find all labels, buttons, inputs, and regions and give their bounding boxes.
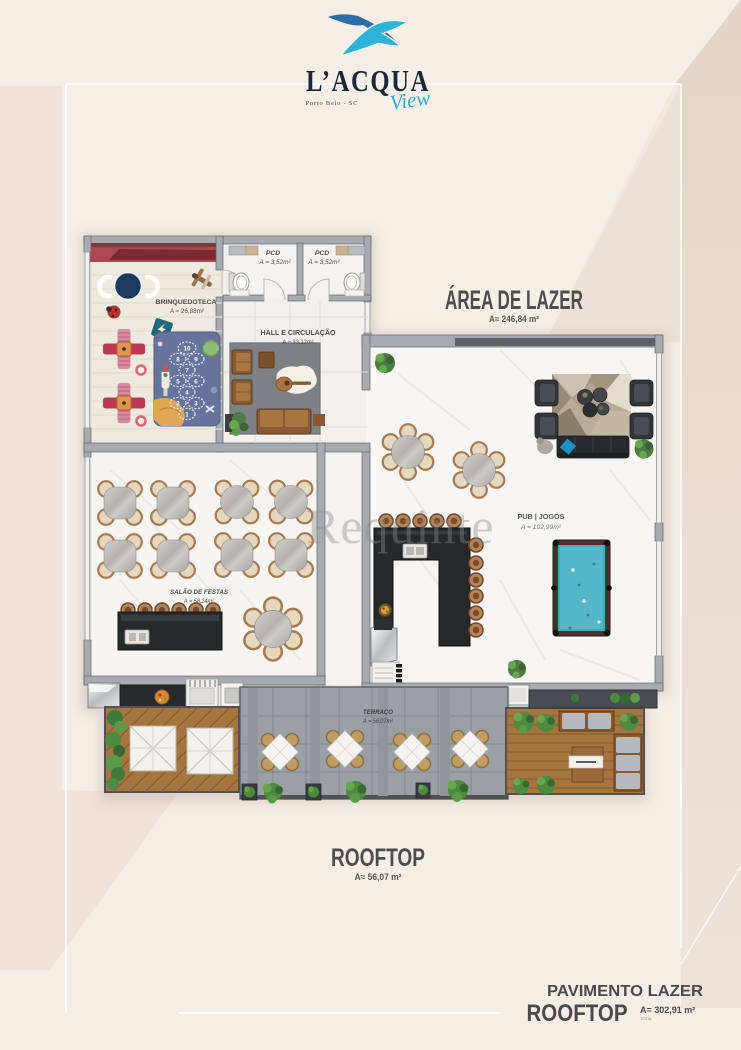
svg-text:1: 1 xyxy=(185,411,189,418)
svg-text:PAVIMENTO LAZER: PAVIMENTO LAZER xyxy=(547,983,703,1000)
svg-text:A = 3,52m²: A = 3,52m² xyxy=(307,259,340,266)
svg-text:A = 33,12m²: A = 33,12m² xyxy=(283,339,314,346)
svg-text:A = 56,07m²: A = 56,07m² xyxy=(362,719,394,725)
svg-text:4: 4 xyxy=(185,389,189,396)
svg-text:TERRAÇO: TERRAÇO xyxy=(363,709,394,716)
svg-text:PUB | JOGOS: PUB | JOGOS xyxy=(518,514,565,521)
svg-text:3: 3 xyxy=(194,400,198,407)
svg-text:6: 6 xyxy=(194,378,198,385)
svg-text:HALL E CIRCULAÇÃO: HALL E CIRCULAÇÃO xyxy=(261,328,336,337)
svg-text:A ≈ 26,88m²: A ≈ 26,88m² xyxy=(170,308,204,315)
svg-text:5: 5 xyxy=(176,378,180,385)
svg-text:TOTAL: TOTAL xyxy=(640,1016,653,1021)
svg-text:PCD: PCD xyxy=(315,250,329,257)
svg-text:ÁREA DE LAZER: ÁREA DE LAZER xyxy=(445,284,583,315)
svg-text:A = 102,99m²: A = 102,99m² xyxy=(520,524,562,531)
svg-text:9: 9 xyxy=(194,356,198,363)
svg-text:PCD: PCD xyxy=(266,250,280,257)
svg-text:A≈ 246,84 m²: A≈ 246,84 m² xyxy=(489,314,539,324)
svg-text:SALÃO DE FESTAS: SALÃO DE FESTAS xyxy=(170,587,229,596)
svg-text:Porto Belo - SC: Porto Belo - SC xyxy=(306,100,359,107)
svg-text:ROOFTOP: ROOFTOP xyxy=(331,844,425,872)
svg-text:Requinte: Requinte xyxy=(306,498,495,554)
svg-text:A= 302,91 m²: A= 302,91 m² xyxy=(640,1005,695,1015)
svg-text:2: 2 xyxy=(176,400,180,407)
svg-text:A = 3,52m²: A = 3,52m² xyxy=(258,259,291,266)
svg-text:BRINQUEDOTECA: BRINQUEDOTECA xyxy=(156,299,217,306)
svg-text:ROOFTOP: ROOFTOP xyxy=(527,1000,628,1027)
svg-text:7: 7 xyxy=(185,367,189,374)
svg-text:A≈ 56,07 m²: A≈ 56,07 m² xyxy=(355,872,402,882)
svg-text:10: 10 xyxy=(184,345,191,352)
svg-text:8: 8 xyxy=(176,356,180,363)
